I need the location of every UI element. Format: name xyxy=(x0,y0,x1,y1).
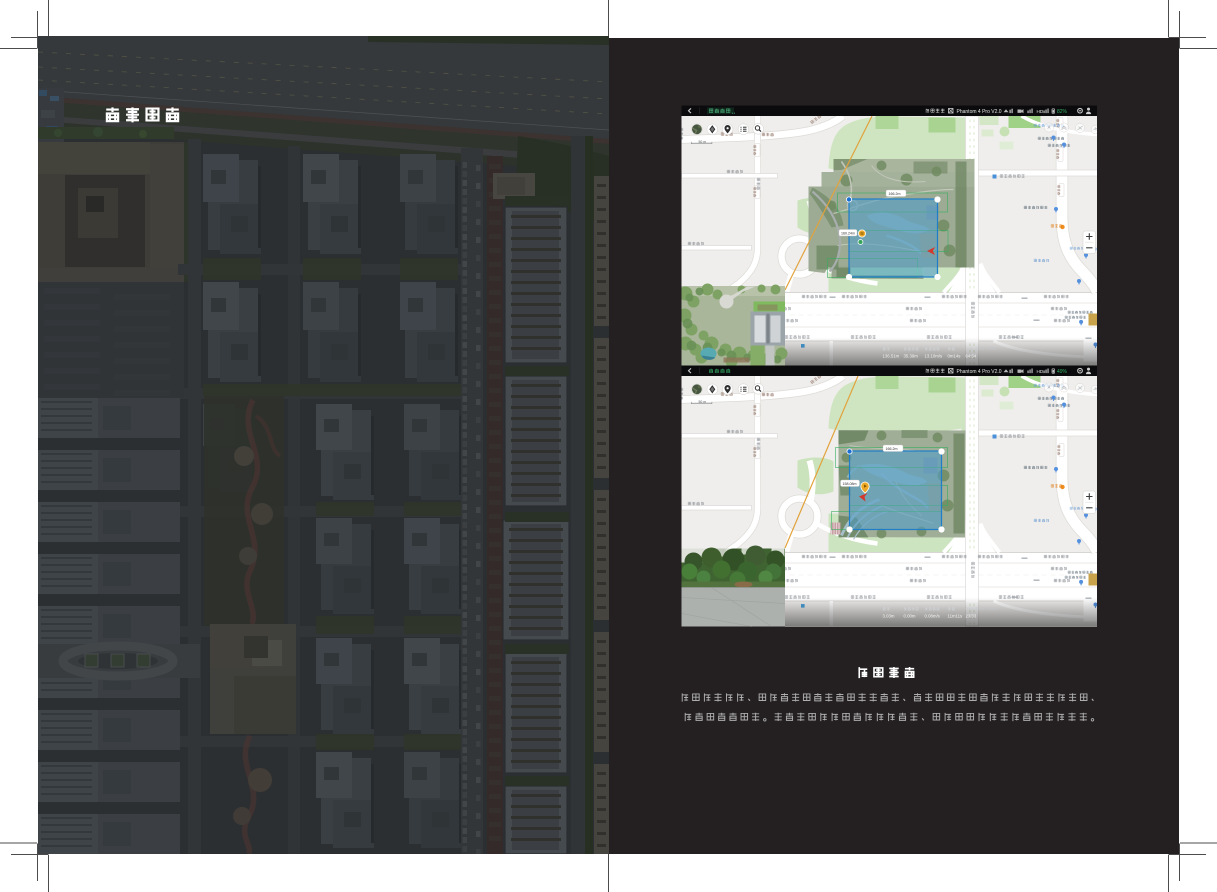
svg-text:3.03m: 3.03m xyxy=(883,613,895,618)
svg-text:35.39m: 35.39m xyxy=(904,353,919,358)
svg-text:0.08m/s: 0.08m/s xyxy=(925,613,940,618)
svg-text:64:54: 64:54 xyxy=(966,353,977,358)
svg-text:158.08m: 158.08m xyxy=(843,482,857,486)
svg-text:HD: HD xyxy=(1037,369,1044,374)
svg-text:136.51m: 136.51m xyxy=(883,353,900,358)
svg-text:0:16 / 23:41 +23:04: 0:16 / 23:41 +23:04 xyxy=(966,607,997,611)
svg-text:Phantom 4 Pro V2.0: Phantom 4 Pro V2.0 xyxy=(957,109,1002,115)
svg-text:166.2m: 166.2m xyxy=(886,447,898,451)
svg-text:HD: HD xyxy=(1037,109,1044,114)
svg-text:160.24m: 160.24m xyxy=(841,231,855,235)
svg-text:166.2m: 166.2m xyxy=(889,192,901,196)
svg-text:0:16 / 23:41 +23:04: 0:16 / 23:41 +23:04 xyxy=(966,347,997,351)
svg-text:13.10m/s: 13.10m/s xyxy=(925,353,943,358)
svg-text:0.00m: 0.00m xyxy=(904,613,916,618)
svg-text:23/33: 23/33 xyxy=(966,613,977,618)
svg-text:11m11s: 11m11s xyxy=(948,613,963,618)
svg-text:82%: 82% xyxy=(1057,109,1068,115)
svg-text:49%: 49% xyxy=(1057,369,1068,375)
svg-text:Phantom 4 Pro V2.0: Phantom 4 Pro V2.0 xyxy=(957,369,1002,375)
svg-text:0m14s: 0m14s xyxy=(948,353,961,358)
